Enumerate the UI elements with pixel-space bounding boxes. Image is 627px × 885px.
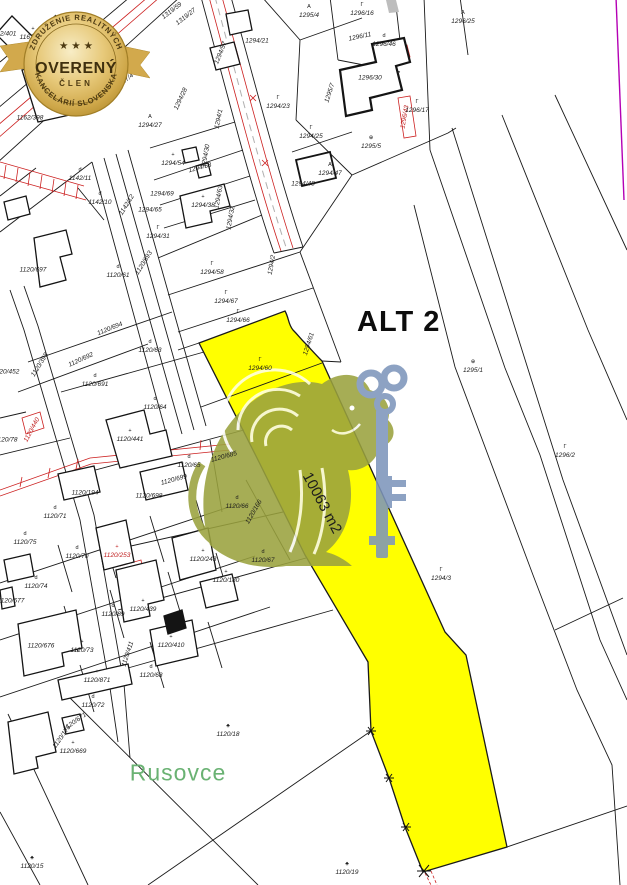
badge-stars-icon: ★ ★ ★ [59, 40, 94, 52]
badge-subtitle: ČLEN [59, 79, 93, 88]
badge-title: OVERENÝ [35, 58, 117, 77]
cadastral-map-page: +1162/4001162/4011162/3971162/3981317/41… [0, 0, 627, 885]
verified-member-badge: ZDRUŽENIE REALITNÝCH ★ ★ ★ OVERENÝ ČLEN … [0, 0, 150, 130]
place-name-label: Rusovce [130, 760, 226, 787]
watermark-lion-key-icon [192, 368, 406, 567]
alternative-label: ALT 2 [357, 306, 440, 339]
map-sheet-edge [616, 0, 624, 200]
map-canvas [0, 0, 627, 885]
